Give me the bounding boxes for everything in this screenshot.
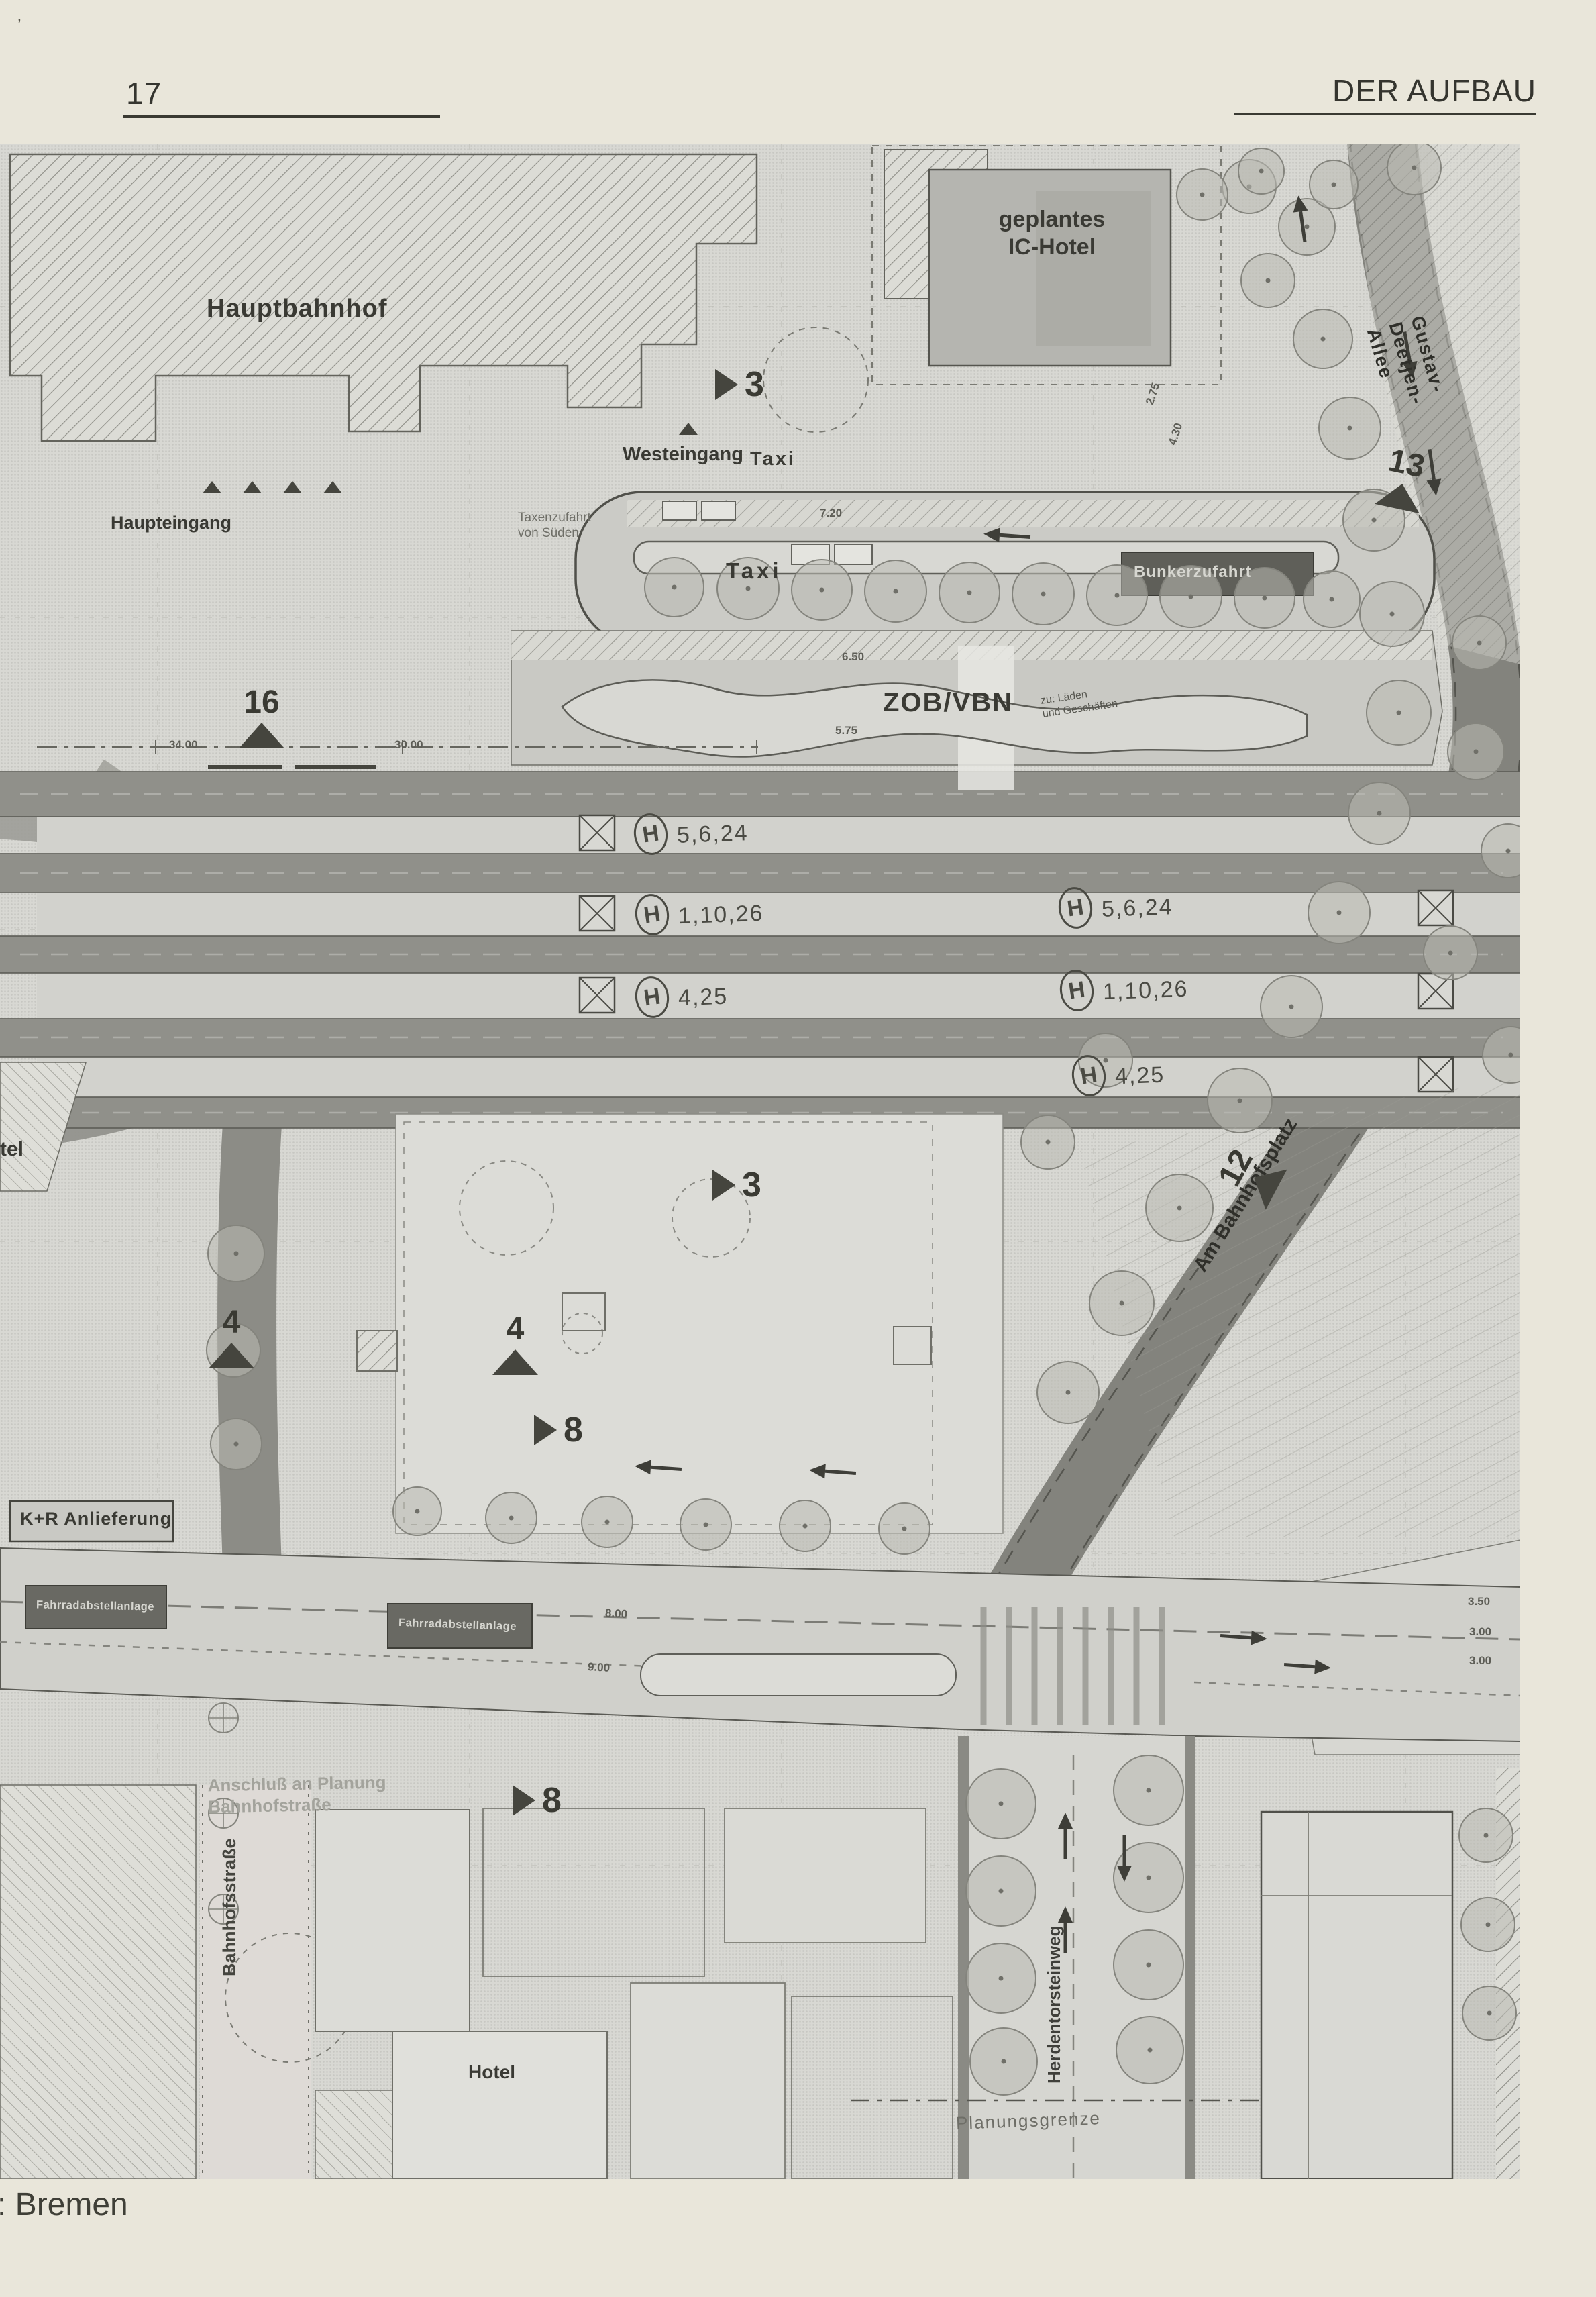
tree-icon xyxy=(393,1487,441,1535)
marker-3-plaza: 3 xyxy=(712,1168,761,1203)
label-hotel-cutoff: tel xyxy=(0,1137,23,1162)
tree-icon xyxy=(1146,1174,1213,1241)
tree-icon xyxy=(1424,926,1477,980)
tree-icon xyxy=(1308,882,1370,943)
marker-4-plaza: 4 xyxy=(482,1313,549,1375)
dimension-label: 9.00 xyxy=(587,1660,610,1675)
tree-icon xyxy=(1116,2017,1183,2084)
header-rule-left xyxy=(123,115,440,118)
tree-icon xyxy=(966,1943,1036,2013)
tree-icon xyxy=(780,1500,831,1551)
dimension-label: 8.00 xyxy=(604,1606,627,1621)
bus-stop-1-10-26: H 1,10,26 xyxy=(635,894,763,935)
label-bunkerzufahrt: Bunkerzufahrt xyxy=(1134,562,1252,582)
dimension-label: 34.00 xyxy=(169,738,198,752)
tree-icon xyxy=(1304,571,1360,627)
marker-3-top: 3 xyxy=(715,367,764,402)
tree-icon xyxy=(1387,144,1441,195)
bus-stop-4-25: H 4,25 xyxy=(635,976,728,1018)
tree-icon xyxy=(1238,148,1284,194)
tree-icon xyxy=(209,1703,238,1733)
dimension-label: 3.00 xyxy=(1469,1654,1491,1668)
tree-icon xyxy=(1348,782,1410,844)
tree-icon xyxy=(645,558,704,617)
bus-stop-5-6-24-right: H 5,6,24 xyxy=(1059,887,1173,929)
h-stop-icon: H xyxy=(1056,885,1095,931)
tree-icon xyxy=(792,560,852,620)
kiosk xyxy=(357,1331,397,1371)
scanned-page: ’ 17 DER AUFBAU xyxy=(0,0,1596,2297)
dimension-label: 30.00 xyxy=(394,738,423,752)
tree-icon xyxy=(680,1499,731,1550)
dimension-label: 6.50 xyxy=(842,650,864,664)
dimension-label: 7.20 xyxy=(820,507,842,520)
tree-icon xyxy=(966,1769,1036,1839)
tree-icon xyxy=(1452,616,1506,670)
running-head: DER AUFBAU xyxy=(1234,72,1536,109)
h-stop-icon: H xyxy=(633,974,672,1020)
bus-stop-4-25-right: H 4,25 xyxy=(1072,1055,1165,1096)
label-fahrrad-1: Fahrradabstellanlage xyxy=(36,1598,154,1613)
parcel xyxy=(725,1808,926,1943)
tree-icon xyxy=(211,1419,262,1470)
label-hauptbahnhof: Hauptbahnhof xyxy=(207,293,388,324)
tree-icon xyxy=(1367,680,1431,745)
tree-icon xyxy=(1261,976,1322,1037)
marker-16: 16 xyxy=(228,686,295,748)
building-block xyxy=(0,1785,196,2179)
tree-icon xyxy=(1089,1271,1154,1335)
label-anschluss: Anschluß an Planung Bahnhofstraße xyxy=(207,1772,386,1818)
entrance-arrow-icon xyxy=(203,481,221,493)
entrance-arrow-icon xyxy=(283,481,302,493)
tree-icon xyxy=(208,1225,264,1282)
page-number: 17 xyxy=(126,75,162,111)
tree-icon xyxy=(1310,160,1358,209)
label-taxi-top: Taxi xyxy=(750,448,796,471)
tree-icon xyxy=(486,1492,537,1543)
tree-icon xyxy=(1021,1115,1075,1169)
bus-corridor xyxy=(0,772,1520,1128)
forecourt-circle xyxy=(763,327,868,432)
tree-icon xyxy=(1319,397,1381,459)
tree-icon xyxy=(1114,1930,1183,2000)
tree-icon xyxy=(865,560,926,622)
marker-8-plaza: 8 xyxy=(534,1413,583,1447)
label-haupteingang: Haupteingang xyxy=(111,512,231,534)
label-hotel: Hotel xyxy=(468,2061,515,2084)
bus-stop-1-10-26-right: H 1,10,26 xyxy=(1060,970,1188,1011)
tree-icon xyxy=(1448,723,1504,780)
marker-4-left: 4 xyxy=(198,1307,265,1368)
entrance-arrow-icon xyxy=(323,481,342,493)
bus-stop-5-6-24: H 5,6,24 xyxy=(634,813,749,855)
triangle-up-icon xyxy=(209,1343,254,1368)
marker-8-bottom: 8 xyxy=(513,1783,562,1818)
entrance-arrow-icon xyxy=(679,423,698,435)
taxi-rank-hatch xyxy=(627,500,1419,527)
hotel-parcel xyxy=(392,2031,607,2179)
label-kr-anlieferung: K+R Anlieferung xyxy=(20,1508,172,1530)
street-band xyxy=(0,1548,1520,1741)
h-stop-icon: H xyxy=(1069,1053,1108,1099)
triangle-right-icon xyxy=(513,1785,535,1816)
dimension-label: 3.00 xyxy=(1469,1625,1491,1639)
tree-icon xyxy=(1293,309,1352,368)
triangle-right-icon xyxy=(715,369,738,400)
figure-caption: : Bremen xyxy=(0,2186,128,2223)
tree-icon xyxy=(1360,582,1424,646)
triangle-up-icon xyxy=(239,723,284,748)
header-rule-right xyxy=(1234,113,1536,115)
triangle-up-icon xyxy=(492,1349,538,1375)
triangle-right-icon xyxy=(712,1170,735,1201)
tree-icon xyxy=(582,1496,633,1547)
label-bahnhofstrasse: Bahnhofsstraße xyxy=(219,1822,241,1976)
site-plan-map: Hauptbahnhof Haupteingang geplantes IC-H… xyxy=(0,144,1520,2179)
scan-speck: ’ xyxy=(17,15,21,36)
parcel xyxy=(483,1808,704,1976)
tree-icon xyxy=(966,1856,1036,1926)
street-bahnhofstrasse xyxy=(200,1785,311,2179)
tree-icon xyxy=(1012,563,1074,625)
building-block xyxy=(1261,1812,1452,2179)
tree-icon xyxy=(1177,169,1228,220)
tree-icon xyxy=(1461,1898,1515,1951)
label-taxi-center: Taxi xyxy=(726,558,782,584)
tree-icon xyxy=(1241,254,1295,307)
h-stop-icon: H xyxy=(633,892,672,937)
tree-icon xyxy=(1114,1755,1183,1825)
dimension-label: 3.50 xyxy=(1468,1595,1490,1609)
label-westeingang: Westeingang xyxy=(623,443,743,466)
tree-icon xyxy=(939,562,1000,623)
parcel xyxy=(792,1996,953,2179)
parcel xyxy=(315,1810,470,2031)
label-taxizufahrt: Taxenzufahrt von Süden xyxy=(518,510,591,541)
dimension-label: 5.75 xyxy=(835,724,857,737)
tree-icon xyxy=(1459,1808,1513,1862)
triangle-right-icon xyxy=(534,1415,557,1445)
label-herdentorsteinweg: Herdentorsteinweg xyxy=(1044,1882,1065,2084)
tree-icon xyxy=(1462,1986,1516,2040)
h-stop-icon: H xyxy=(631,811,670,857)
parcel xyxy=(631,1983,785,2179)
tree-icon xyxy=(1208,1068,1272,1133)
median-island xyxy=(641,1654,956,1696)
street-edge xyxy=(1185,1736,1195,2179)
entrance-arrow-icon xyxy=(243,481,262,493)
label-ic-hotel: geplantes IC-Hotel xyxy=(958,206,1146,262)
h-stop-icon: H xyxy=(1057,968,1096,1013)
tree-icon xyxy=(970,2028,1037,2095)
tree-icon xyxy=(879,1503,930,1554)
label-zob: ZOB/VBN xyxy=(883,686,1013,719)
tree-icon xyxy=(1037,1362,1099,1423)
